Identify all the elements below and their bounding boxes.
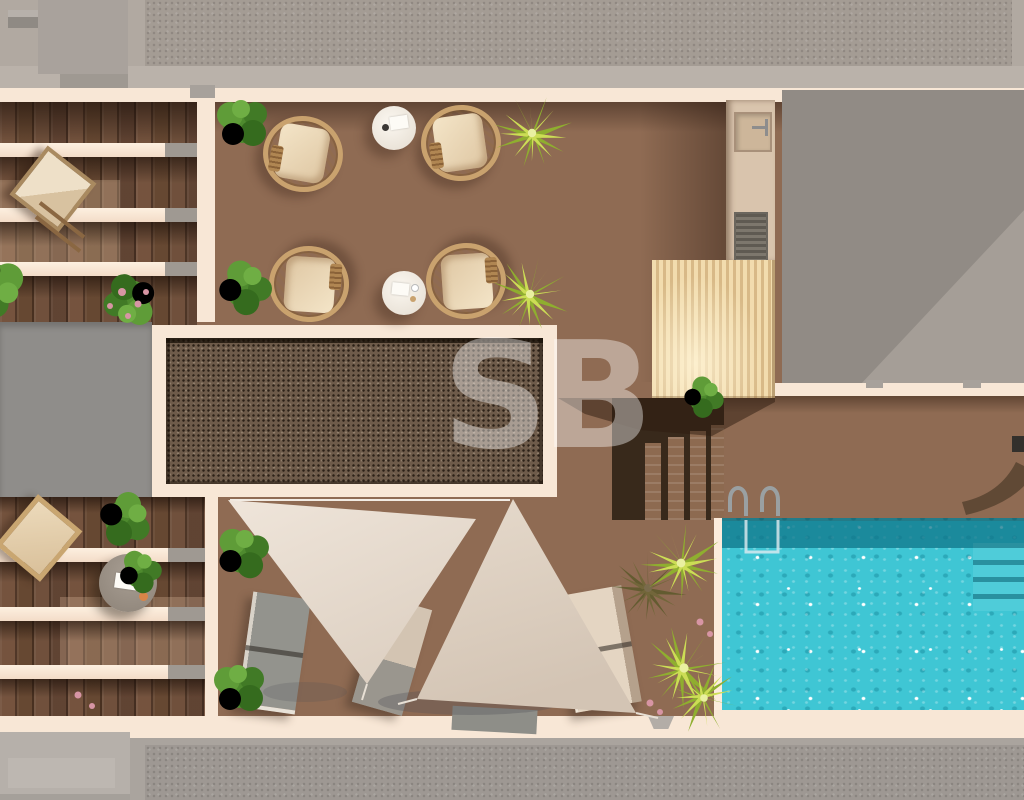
bush <box>113 546 166 598</box>
bottom-roof-edge <box>0 794 130 800</box>
bottom-roof-block-inner <box>8 758 115 788</box>
bush <box>0 248 31 324</box>
bush <box>100 270 163 330</box>
bush <box>214 665 264 711</box>
sail-rope <box>636 713 658 718</box>
bush <box>210 254 278 321</box>
bottom-roof-texture <box>145 745 1024 800</box>
rooftop-terrace-render: SB <box>0 0 1024 800</box>
palm-plant <box>492 94 574 172</box>
palm-plant <box>625 609 744 729</box>
palm-shadow <box>598 538 700 638</box>
palm-plant <box>653 648 755 750</box>
palm-plant <box>630 512 734 613</box>
bush <box>217 100 267 146</box>
bush <box>94 488 154 551</box>
pool-ladder-sub <box>746 520 778 552</box>
pool-ladder <box>730 488 778 516</box>
watermark-logo: SB <box>442 322 612 482</box>
sail-rope <box>362 684 367 700</box>
grill <box>1012 436 1024 452</box>
curved-bench <box>962 462 1024 515</box>
